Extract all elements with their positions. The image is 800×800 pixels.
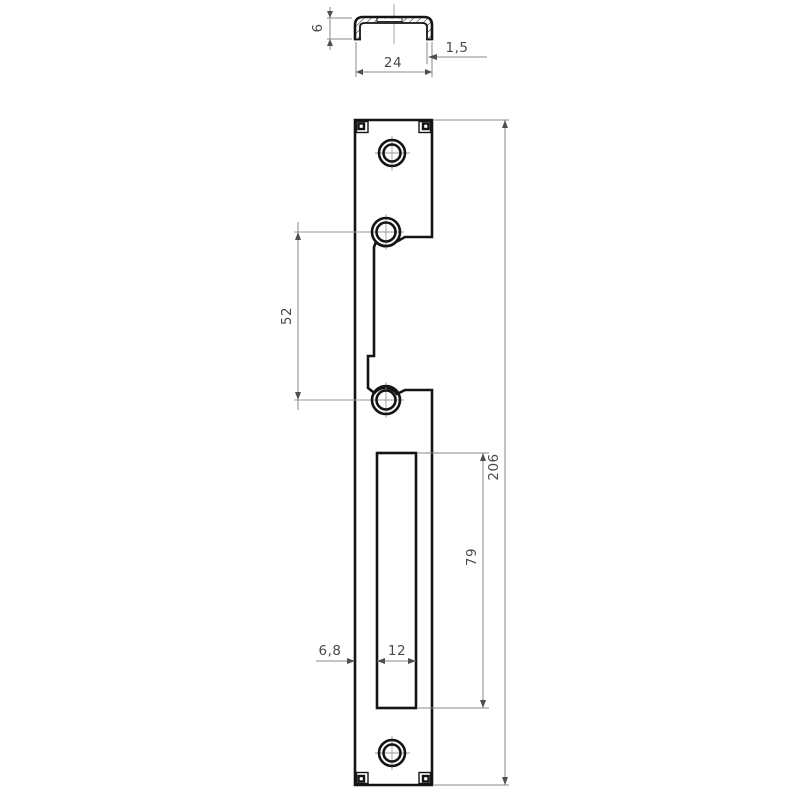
dimension-slot-offset: 6,8 — [316, 643, 355, 664]
dimension-label-slot-length: 79 — [464, 548, 480, 566]
dimension-label-width: 24 — [384, 55, 402, 71]
dimension-label-total-length: 206 — [486, 453, 502, 480]
dimension-label-slot-offset: 6,8 — [319, 643, 342, 659]
section-inner-profile — [360, 23, 427, 40]
dimension-section-width: 24 — [356, 42, 432, 77]
front-view: 52 206 79 6,8 — [279, 120, 509, 785]
arrowhead — [425, 69, 432, 75]
dimension-label-slot-width: 12 — [388, 643, 406, 659]
arrowhead — [295, 232, 301, 240]
arrowhead — [502, 777, 508, 785]
technical-drawing-page: 6 24 1,5 — [0, 0, 800, 800]
arrowhead — [327, 11, 333, 18]
arrowhead — [356, 69, 363, 75]
arrowhead — [502, 120, 508, 128]
dimension-label-height: 6 — [310, 23, 326, 32]
arrowhead — [480, 700, 486, 708]
dimension-section-wall: 1,5 — [427, 40, 487, 64]
dimension-hole-spacing: 52 — [279, 222, 301, 410]
dimension-label-wall: 1,5 — [446, 40, 469, 56]
section-view: 6 24 1,5 — [310, 4, 487, 77]
dimension-label-hole-spacing: 52 — [279, 307, 295, 325]
arrowhead — [295, 392, 301, 400]
dimension-section-height: 6 — [310, 7, 352, 50]
technical-drawing-canvas: 6 24 1,5 — [0, 0, 800, 800]
arrowhead — [327, 39, 333, 46]
